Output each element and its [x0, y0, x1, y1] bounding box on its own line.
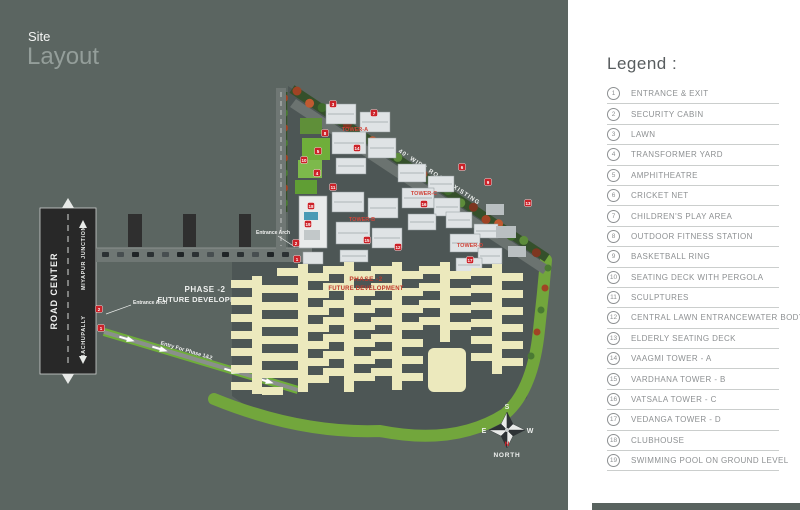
tower-c-label: TOWER-C — [411, 191, 437, 197]
svg-text:14: 14 — [354, 146, 360, 151]
legend-item-label: TRANSFORMER YARD — [631, 150, 723, 159]
legend-item-18: 18CLUBHOUSE — [607, 431, 779, 451]
map-marker-6: 6 — [459, 164, 466, 171]
compass-s: S — [505, 404, 510, 411]
map-marker-15: 15 — [364, 237, 371, 244]
legend-item-label: ENTRANCE & EXIT — [631, 89, 709, 98]
map-marker-2: 2 — [293, 240, 300, 247]
legend-item-number: 4 — [607, 148, 620, 161]
legend-panel: Legend : 1ENTRANCE & EXIT2SECURITY CABIN… — [568, 0, 800, 510]
legend-item-number: 7 — [607, 210, 620, 223]
legend-item-label: VAAGMI TOWER - A — [631, 354, 712, 363]
compass-north-label: NORTH — [493, 452, 520, 459]
legend-item-11: 11SCULPTURES — [607, 288, 779, 308]
legend-item-number: 16 — [607, 393, 620, 406]
phase2-red-line1: PHASE -2 — [349, 276, 382, 283]
legend-item-number: 17 — [607, 413, 620, 426]
map-marker-9: 9 — [485, 179, 492, 186]
svg-text:19: 19 — [305, 222, 311, 227]
svg-text:12: 12 — [395, 245, 401, 250]
legend-item-number: 8 — [607, 230, 620, 243]
compass-w: W — [527, 428, 534, 435]
legend-item-5: 5AMPHITHEATRE — [607, 166, 779, 186]
phase2-note-line1: PHASE -2 — [185, 285, 226, 294]
legend-item-number: 10 — [607, 271, 620, 284]
legend-item-label: SWIMMING POOL ON GROUND LEVEL — [631, 456, 789, 465]
legend-item-8: 8OUTDOOR FITNESS STATION — [607, 227, 779, 247]
legend-item-label: SECURITY CABIN — [631, 110, 704, 119]
tower-d-label: TOWER-D — [457, 243, 483, 249]
tower-b-label: TOWER-B — [349, 217, 375, 223]
site-layout-page: Site Layout 40' WIDE ROAD EXISTING ROAD … — [0, 0, 800, 510]
map-marker-16: 16 — [421, 201, 428, 208]
tower-a-label: TOWER-A — [342, 127, 368, 133]
legend-item-number: 5 — [607, 169, 620, 182]
svg-text:13: 13 — [525, 201, 531, 206]
compass-n: N — [505, 441, 510, 448]
legend-item-label: CRICKET NET — [631, 191, 689, 200]
legend-item-number: 11 — [607, 291, 620, 304]
road-center-label: ROAD CENTER — [49, 252, 59, 329]
map-marker-18: 18 — [308, 203, 315, 210]
map-marker-1: 1 — [98, 325, 105, 332]
legend-item-label: ELDERLY SEATING DECK — [631, 334, 736, 343]
legend-item-label: CENTRAL LAWN ENTRANCEWATER BODY — [631, 313, 800, 322]
legend-item-label: BASKETBALL RING — [631, 252, 710, 261]
legend-item-number: 19 — [607, 454, 620, 467]
legend-item-2: 2SECURITY CABIN — [607, 104, 779, 124]
access-road — [96, 248, 312, 262]
legend-item-label: CLUBHOUSE — [631, 436, 684, 445]
legend-item-number: 6 — [607, 189, 620, 202]
legend-item-label: AMPHITHEATRE — [631, 171, 698, 180]
legend-item-1: 1ENTRANCE & EXIT — [607, 84, 779, 104]
legend-item-number: 9 — [607, 250, 620, 263]
miyapur-junction-label: MIYAPUR JUNCTION — [81, 226, 87, 290]
legend-item-label: OUTDOOR FITNESS STATION — [631, 232, 753, 241]
legend-item-9: 9BASKETBALL RING — [607, 247, 779, 267]
svg-text:17: 17 — [467, 258, 473, 263]
legend-item-number: 3 — [607, 128, 620, 141]
svg-text:11: 11 — [331, 185, 336, 190]
legend-item-4: 4TRANSFORMER YARD — [607, 145, 779, 165]
svg-text:18: 18 — [308, 204, 314, 209]
map-marker-7: 7 — [371, 110, 378, 117]
svg-text:15: 15 — [364, 238, 370, 243]
map-marker-5: 5 — [315, 148, 322, 155]
bachupally-label: BACHUPALLY — [81, 316, 87, 359]
site-map: Site Layout 40' WIDE ROAD EXISTING ROAD … — [0, 0, 568, 510]
map-marker-3: 3 — [330, 101, 337, 108]
legend-item-7: 7CHILDREN'S PLAY AREA — [607, 206, 779, 226]
map-marker-1: 1 — [294, 256, 301, 263]
legend-item-label: SEATING DECK WITH PERGOLA — [631, 273, 764, 282]
legend-list: 1ENTRANCE & EXIT2SECURITY CABIN3LAWN4TRA… — [607, 84, 779, 471]
legend-item-number: 2 — [607, 108, 620, 121]
legend-item-number: 15 — [607, 373, 620, 386]
legend-item-number: 13 — [607, 332, 620, 345]
legend-item-10: 10SEATING DECK WITH PERGOLA — [607, 268, 779, 288]
phase2-red-line2: FUTURE DEVELOPMENT — [328, 286, 403, 292]
svg-text:16: 16 — [421, 202, 427, 207]
map-marker-11: 11 — [330, 184, 337, 191]
map-marker-10: 10 — [301, 157, 308, 164]
bottom-accent-bar — [592, 503, 800, 510]
map-marker-2: 2 — [96, 306, 103, 313]
legend-item-19: 19SWIMMING POOL ON GROUND LEVEL — [607, 451, 779, 471]
map-marker-4: 4 — [314, 170, 321, 177]
legend-item-number: 14 — [607, 352, 620, 365]
map-marker-12: 12 — [395, 244, 402, 251]
legend-item-17: 17VEDANGA TOWER - D — [607, 410, 779, 430]
compass-e: E — [482, 428, 487, 435]
map-marker-13: 13 — [525, 200, 532, 207]
legend-item-label: LAWN — [631, 130, 655, 139]
svg-text:10: 10 — [301, 158, 307, 163]
map-marker-8: 8 — [322, 130, 329, 137]
legend-item-label: VEDANGA TOWER - D — [631, 415, 721, 424]
map-marker-17: 17 — [467, 257, 474, 264]
entrance-arch-left-label: Entrance Arch — [133, 300, 167, 306]
map-marker-14: 14 — [354, 145, 361, 152]
legend-title: Legend : — [607, 54, 677, 74]
page-title-line1: Site — [28, 29, 50, 44]
legend-item-15: 15VARDHANA TOWER - B — [607, 369, 779, 389]
page-title-line2: Layout — [27, 43, 99, 70]
legend-item-label: VATSALA TOWER - C — [631, 395, 717, 404]
legend-item-12: 12CENTRAL LAWN ENTRANCEWATER BODY — [607, 308, 779, 328]
entrance-arch-right-label: Entrance Arch — [256, 230, 290, 236]
legend-item-3: 3LAWN — [607, 125, 779, 145]
legend-item-14: 14VAAGMI TOWER - A — [607, 349, 779, 369]
legend-item-number: 18 — [607, 434, 620, 447]
legend-item-number: 1 — [607, 87, 620, 100]
legend-item-6: 6CRICKET NET — [607, 186, 779, 206]
legend-item-label: SCULPTURES — [631, 293, 689, 302]
legend-item-label: CHILDREN'S PLAY AREA — [631, 212, 732, 221]
main-road: ROAD CENTER MIYAPUR JUNCTION BACHUPALLY — [40, 198, 96, 384]
legend-item-number: 12 — [607, 311, 620, 324]
legend-item-16: 16VATSALA TOWER - C — [607, 390, 779, 410]
legend-item-13: 13ELDERLY SEATING DECK — [607, 329, 779, 349]
map-marker-19: 19 — [305, 221, 312, 228]
legend-item-label: VARDHANA TOWER - B — [631, 375, 726, 384]
